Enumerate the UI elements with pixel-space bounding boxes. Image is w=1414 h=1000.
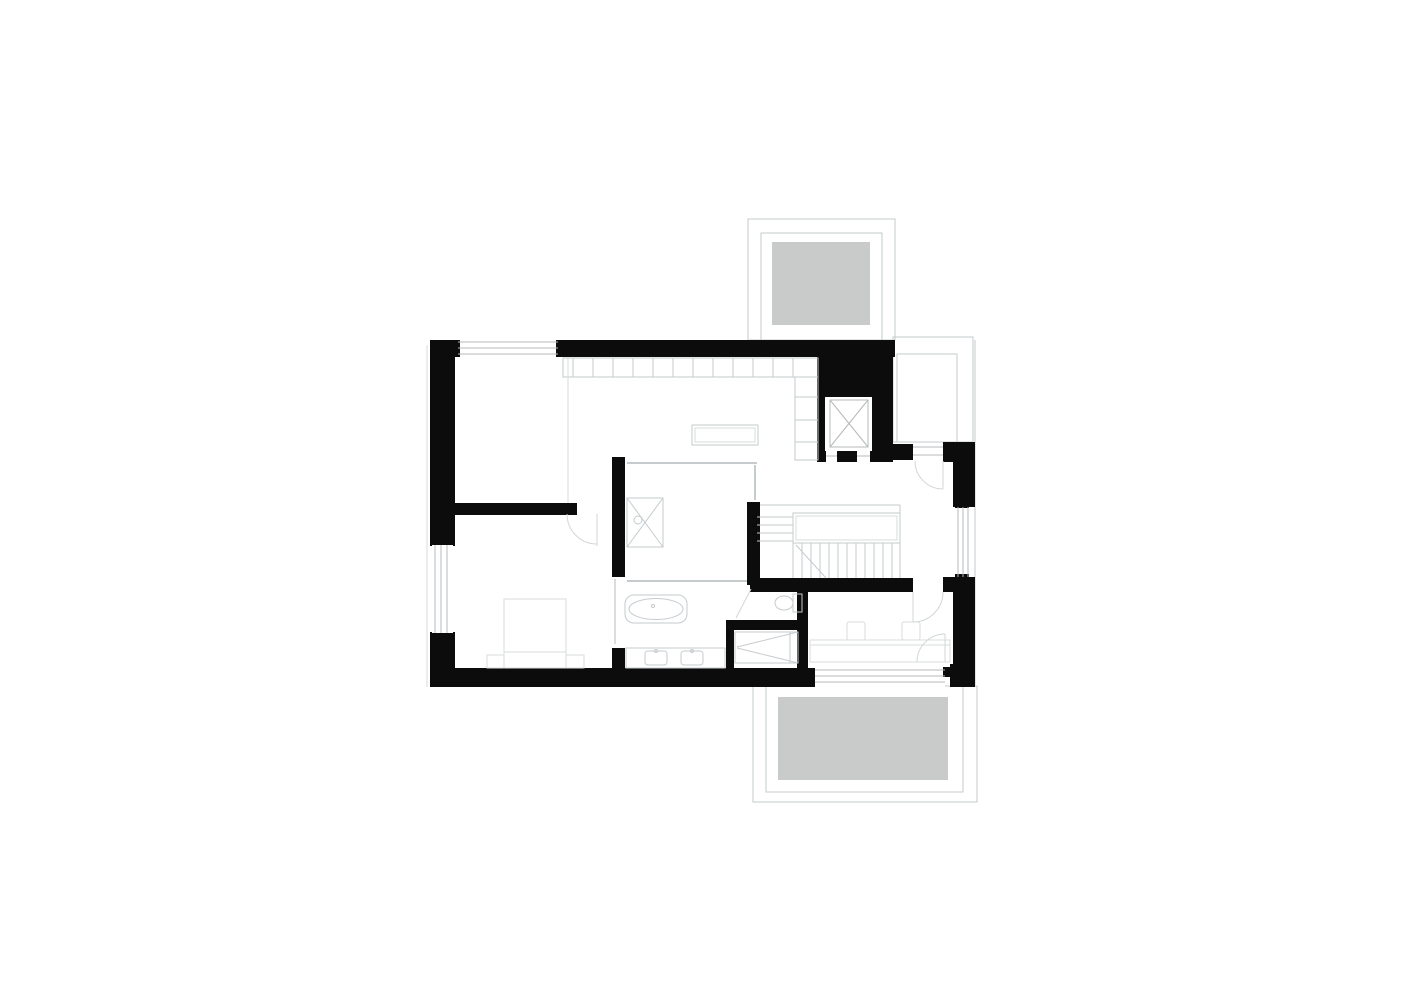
door-swing-stairs-hall [913, 592, 943, 622]
shower-drain [634, 516, 642, 524]
wall-right-lower [953, 577, 975, 687]
wall-wc-bottom [734, 620, 803, 630]
wall-stairs-bottom-nub [943, 577, 953, 592]
storage-diagonal [737, 648, 798, 663]
nightstand-right [566, 655, 584, 668]
bed [504, 599, 566, 668]
wall-bedroom-right-upper [612, 457, 625, 577]
toilet-bowl [775, 596, 793, 610]
door-swing-entry [915, 461, 943, 489]
elevator-door-gap-left [826, 451, 837, 463]
wall-right-mid [953, 460, 975, 507]
wall-wc-left [726, 620, 734, 668]
vanity-counter [626, 648, 725, 668]
wall-bottom [430, 668, 817, 687]
wall-entry-left [893, 444, 913, 460]
nightstand-left [487, 655, 504, 668]
closet-side-band [795, 377, 818, 460]
window-right-cap-bottom [955, 574, 969, 579]
balcony-top-fill [772, 242, 870, 325]
stairs-flight-outer [793, 513, 900, 543]
entry-landing-outline-outer [893, 337, 973, 442]
stairs-flight-inner [796, 516, 897, 540]
storage-diagonal [737, 632, 798, 647]
terrace-bottom-fill [778, 697, 948, 780]
wall-shower-stairs [747, 502, 760, 585]
wall-dressing-bedroom [453, 503, 577, 515]
bathtub-basin [629, 599, 683, 620]
wall-entry-corner [943, 442, 975, 462]
elevator-door-gap-right [857, 451, 870, 463]
dressing-island-inner [695, 428, 755, 442]
entry-landing-outline-inner [897, 354, 957, 442]
closet-band [563, 358, 818, 377]
window-right-cap-top [955, 503, 969, 508]
window-bottom-opening [815, 666, 945, 688]
storage-unit [735, 632, 798, 663]
bathtub [625, 595, 687, 623]
floor-plan-canvas [0, 0, 1414, 1000]
desk [810, 640, 950, 662]
wall-bedroom-right-lower [612, 648, 625, 668]
floor-plan-page [0, 0, 1414, 1000]
bathtub-drain [652, 605, 655, 608]
door-swing-hall [567, 514, 597, 544]
chair-right [902, 622, 920, 640]
wall-left-upper [430, 340, 455, 546]
vanity-basin-left [645, 651, 667, 665]
door-leaf-wc [736, 589, 751, 618]
chair-left [847, 622, 865, 640]
door-swing-terrace [917, 634, 945, 662]
vanity-basin-right [681, 651, 703, 665]
wall-stairs-bottom [750, 578, 913, 592]
